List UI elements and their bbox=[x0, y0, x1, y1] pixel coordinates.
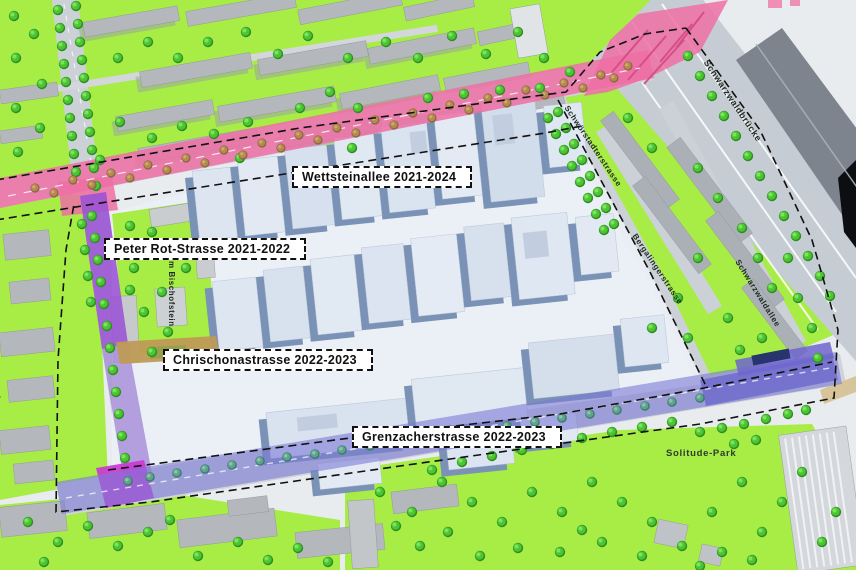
site-plan: Wettsteinallee 2021-2024 Peter Rot-Stras… bbox=[0, 0, 856, 570]
label-solitude-park: Solitude-Park bbox=[666, 448, 736, 459]
label-chrischonastrasse: Chrischonastrasse 2022-2023 bbox=[163, 349, 373, 371]
label-wettsteinallee: Wettsteinallee 2021-2024 bbox=[292, 166, 472, 188]
label-alemannengasse: Alemannengasse bbox=[0, 390, 2, 460]
label-grenzacherstrasse: Grenzacherstrasse 2022-2023 bbox=[352, 426, 562, 448]
label-peter-rot-strasse: Peter Rot-Strasse 2021-2022 bbox=[104, 238, 306, 260]
label-zum-bischofstein: Zum Bischofstein bbox=[167, 250, 176, 327]
